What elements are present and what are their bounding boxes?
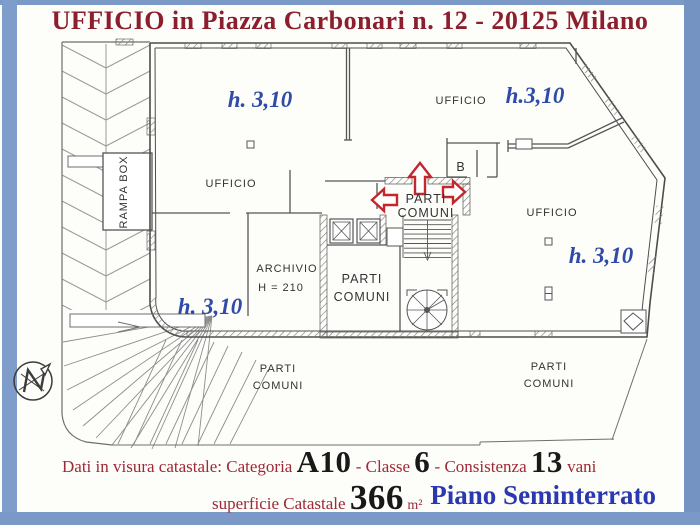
stairs	[403, 215, 451, 260]
superficie-group: superficie Catastale 366 m²	[212, 478, 422, 518]
arrow-left-icon	[372, 189, 397, 211]
categoria-value: A10	[297, 444, 352, 480]
parti-comuni-bottom-left-line2: COMUNI	[253, 380, 304, 392]
parti-comuni-hall-line2: COMUNI	[398, 206, 455, 220]
floor-plan-page: UFFICIO in Piazza Carbonari n. 12 - 2012…	[0, 0, 700, 525]
archivio-height-label: H = 210	[258, 282, 304, 294]
surface-floor-line: superficie Catastale 366 m² Piano Semint…	[0, 476, 684, 516]
spiral-stair	[407, 290, 447, 330]
parti-comuni-bottom-right-line1: PARTI	[531, 361, 567, 373]
height-label-bottom-left: h. 3,10	[178, 294, 243, 319]
superficie-label: superficie Catastale	[212, 494, 350, 514]
rampa-box-label: RAMPA BOX	[118, 156, 130, 229]
ufficio-top-right-label: UFFICIO	[436, 95, 487, 107]
classe-label: - Classe	[352, 457, 415, 477]
elevator-landing	[387, 228, 403, 246]
cadastral-intro: Dati in visura catastale: Categoria	[62, 457, 297, 477]
parti-comuni-core-line1: PARTI	[342, 272, 383, 286]
elevator-2	[357, 219, 380, 243]
consistenza-label: - Consistenza	[430, 457, 531, 477]
corner-window	[621, 310, 646, 333]
parti-comuni-core-line2: COMUNI	[334, 290, 391, 304]
parti-comuni-bottom-left-line1: PARTI	[260, 363, 296, 375]
cadastral-data-line: Dati in visura catastale: Categoria A10 …	[62, 444, 596, 480]
consistenza-value: 13	[531, 444, 563, 480]
height-label-top-left: h. 3,10	[228, 87, 293, 112]
ufficio-right-label: UFFICIO	[527, 207, 578, 219]
classe-value: 6	[414, 444, 430, 480]
lot-boundary	[112, 339, 647, 445]
height-label-top-right: h.3,10	[506, 83, 565, 108]
north-compass-icon	[14, 362, 52, 400]
ufficio-top-left-label: UFFICIO	[206, 178, 257, 190]
archivio-label: ARCHIVIO	[256, 263, 317, 275]
floor-name: Piano Seminterrato	[430, 480, 656, 511]
parti-comuni-hall-line1: PARTI	[406, 192, 447, 206]
height-label-right: h. 3,10	[569, 243, 634, 268]
vani-label: vani	[563, 457, 597, 477]
elevator-1	[330, 219, 353, 243]
room-b-label: B	[456, 160, 465, 174]
ramp-diagonal-hatch	[118, 340, 268, 444]
parti-comuni-bottom-right-line2: COMUNI	[524, 378, 575, 390]
superficie-value: 366	[350, 478, 404, 518]
superficie-unit: m²	[404, 498, 423, 514]
